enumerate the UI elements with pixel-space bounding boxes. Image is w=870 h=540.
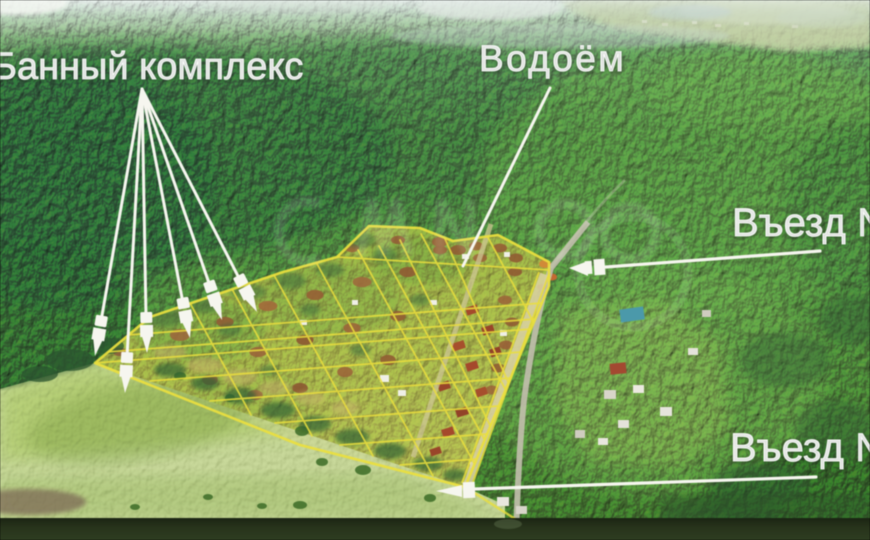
svg-text:Водоём: Водоём [479,38,626,79]
svg-text:Банный комплекс: Банный комплекс [0,46,303,88]
svg-text:Въезд №9: Въезд №9 [732,201,870,245]
svg-text:Въезд №8: Въезд №8 [730,426,870,470]
